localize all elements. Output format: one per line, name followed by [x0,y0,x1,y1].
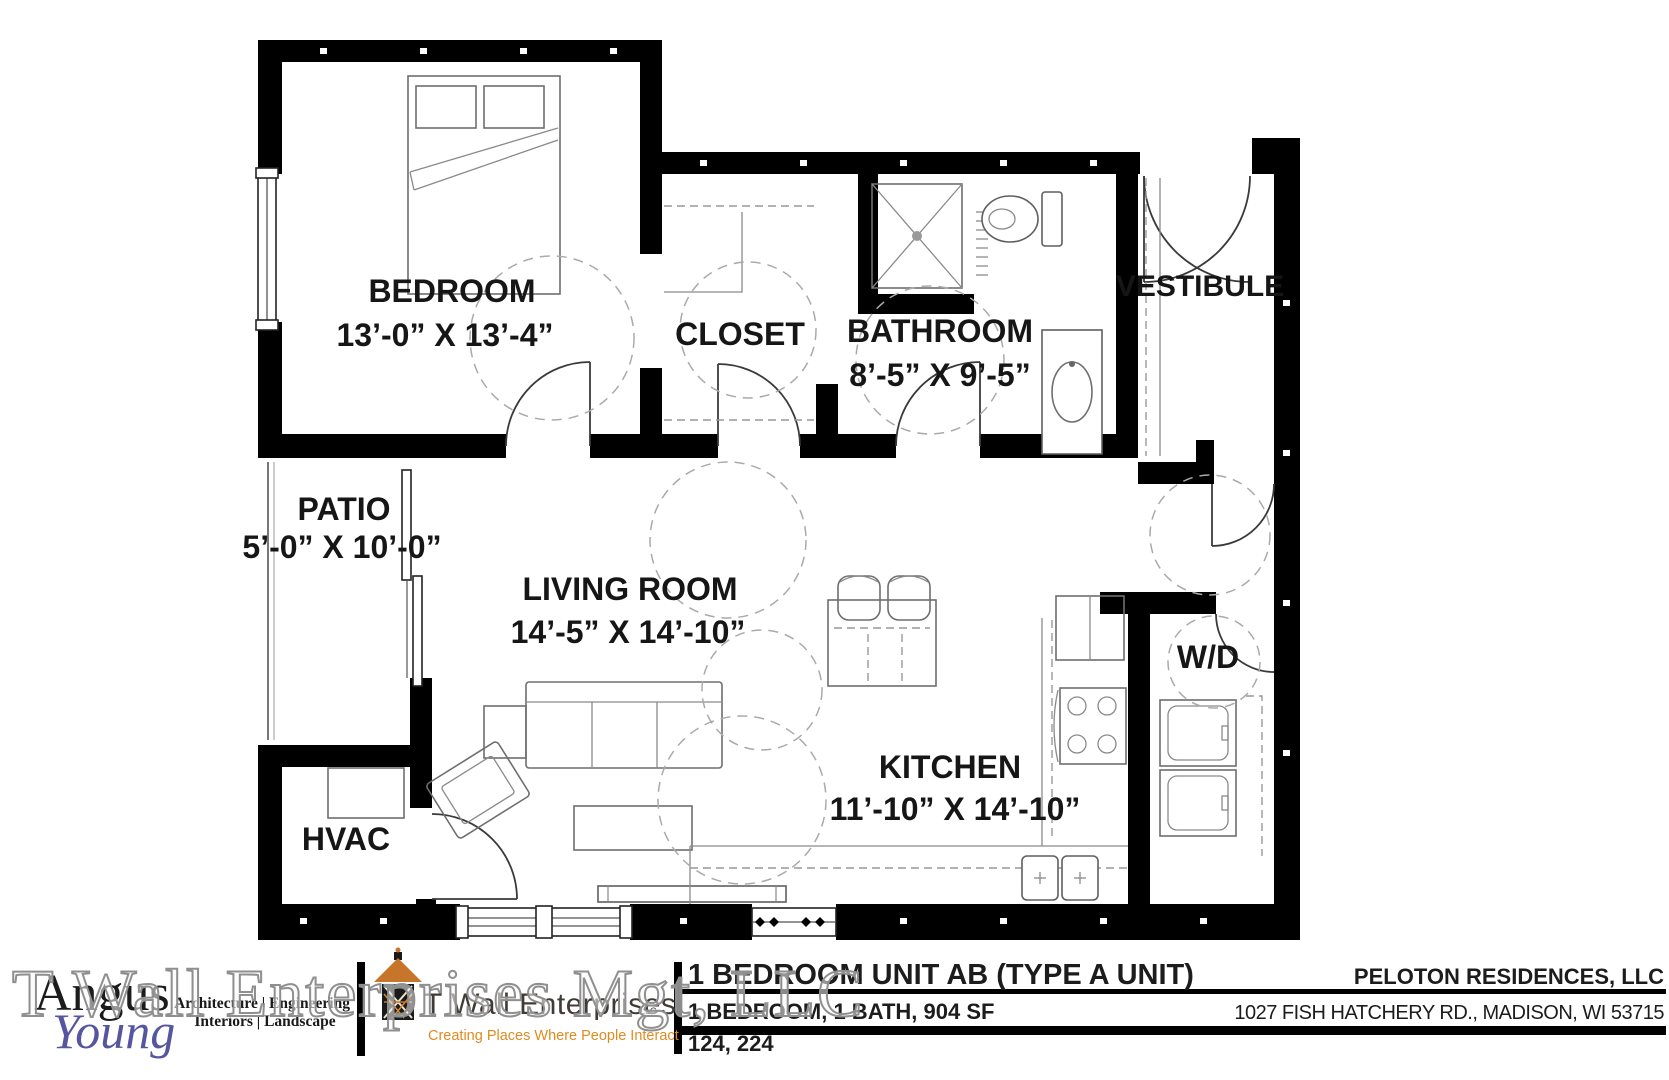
wall-bottom-b [630,904,752,940]
label-kitchen: KITCHEN [879,749,1021,785]
bedroom-door [506,362,590,446]
unit-numbers: 124, 224 [688,1031,774,1056]
label-bathroom: BATHROOM [847,313,1033,349]
sofa [526,682,722,768]
washer-dryer-units [1160,696,1262,856]
wall-vestibule-stub [1196,440,1214,484]
wall-bedroom-south [258,434,506,458]
wall-hall-south-1 [662,434,718,458]
label-living-room: LIVING ROOM [522,571,737,607]
label-patio: PATIO [297,491,390,527]
label-vestibule: VESTIBULE [1116,270,1284,303]
owner-name: PELOTON RESIDENCES, LLC [1354,964,1664,989]
label-bathroom-dims: 8’-5” X 9’-5” [849,357,1030,393]
wall-left-bottom [258,745,282,940]
closet-door [718,364,800,446]
wall-closet-bath-stub [816,384,838,434]
label-living-room-dims: 14’-5” X 14’-10” [511,614,746,650]
bar-stools [838,576,930,620]
patio-sliding-door [402,470,422,686]
kitchen-sink [1022,856,1098,900]
label-hvac: HVAC [302,821,390,857]
wall-hall-south-2 [800,434,896,458]
hvac-unit [328,768,404,818]
closet-fittings [664,206,814,420]
bed [408,76,560,294]
wall-kitchen-wd [1128,592,1150,904]
label-kitchen-dims: 11’-10” X 14’-10” [830,791,1081,827]
wall-left-top [258,40,282,174]
label-closet: CLOSET [675,316,805,352]
vestibule-south-door [1212,484,1274,546]
wall-bath-vestibule [1116,174,1138,458]
label-patio-dims: 5’-0” X 10’-0” [242,529,441,565]
label-wd: W/D [1177,639,1239,675]
bathroom-sink [1042,330,1102,454]
bottom-window-2 [752,908,836,936]
accent-chair [425,741,530,840]
range [1054,688,1126,764]
shower [872,184,988,288]
owner-address: 1027 FISH HATCHERY RD., MADISON, WI 5371… [1234,1002,1664,1024]
toilet [982,192,1062,246]
wall-hvac-east [410,678,432,808]
bedroom-window [256,168,278,330]
wall-bedroom-top [258,40,662,62]
wall-patio-bottom [258,745,432,767]
hvac-door [432,814,517,899]
wall-shower-south [858,294,974,314]
watermark-text: T Wall Enterprises Mgt, LLC [12,955,864,1031]
wall-closet-west-upper [640,174,662,254]
bottom-window-1 [456,906,632,938]
side-table [484,706,526,758]
wall-hvac-jamb [416,899,436,917]
walls [258,40,1300,940]
window-ledge [598,886,786,902]
kitchen-island [828,600,936,686]
coffee-table [574,806,692,850]
floor-plan-canvas: BEDROOM 13’-0” X 13’-4” CLOSET BATHROOM … [0,0,1669,1080]
wall-closet-west-lower [640,368,662,458]
label-bedroom-dims: 13’-0” X 13’-4” [337,317,554,353]
floor-plan-sheet: BEDROOM 13’-0” X 13’-4” CLOSET BATHROOM … [0,0,1669,1080]
wall-bedroom-south-east [590,434,640,458]
label-bedroom: BEDROOM [368,273,535,309]
wall-right [1274,138,1300,940]
patio-railing [268,462,274,740]
wall-hall-top [640,152,1140,174]
